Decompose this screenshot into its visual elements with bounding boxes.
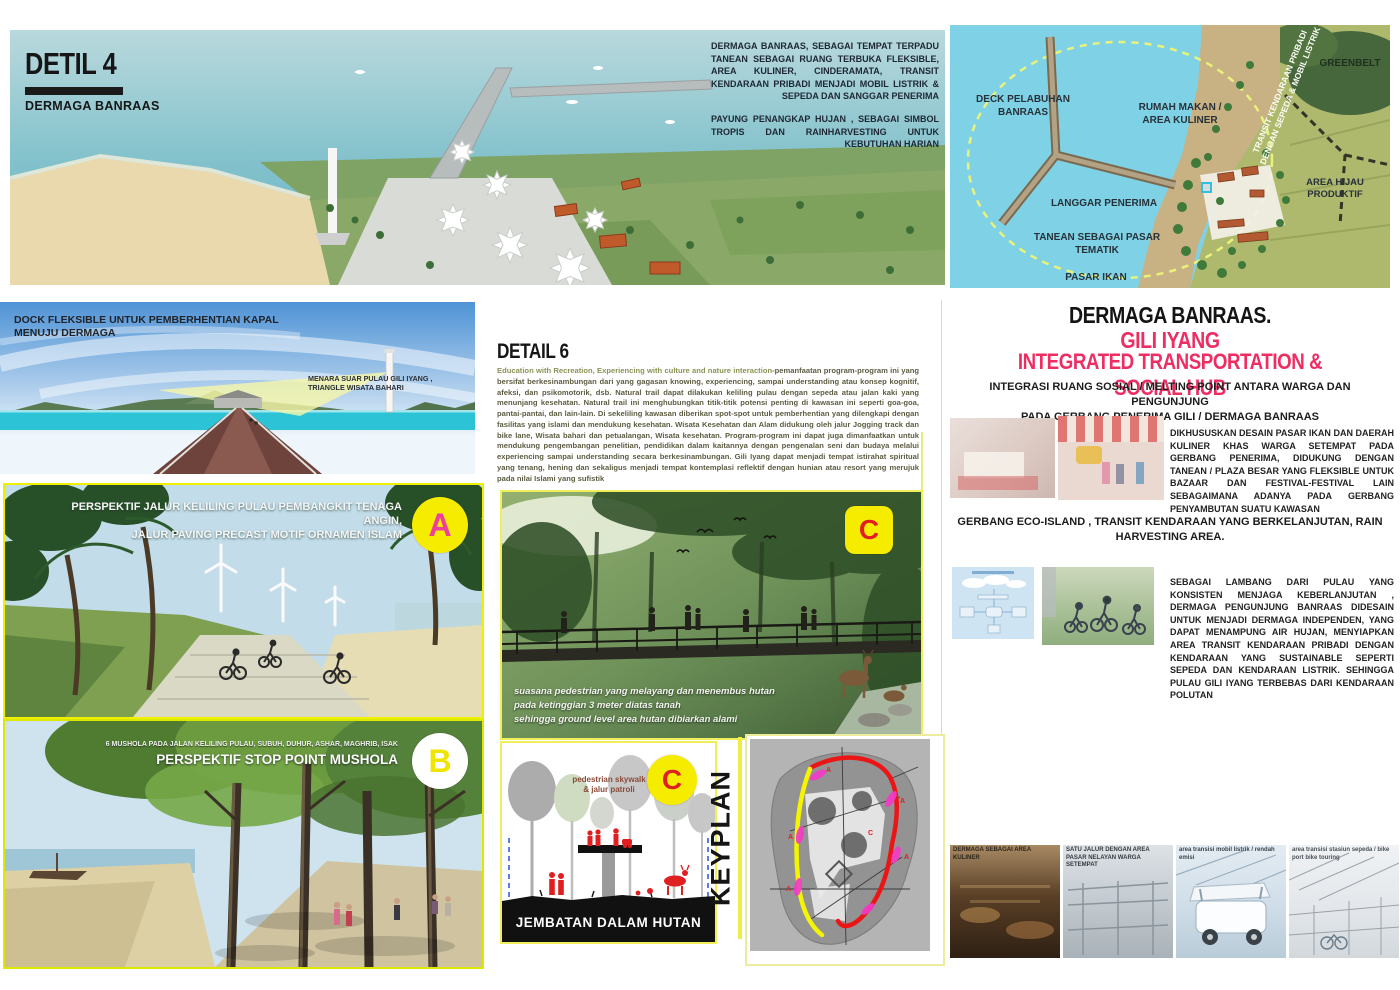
right-title-dermaga: DERMAGA BANRAAS.: [950, 302, 1390, 329]
hero-description-block: DERMAGA BANRAAS, SEBAGAI TEMPAT TERPADU …: [711, 40, 939, 161]
detail6-lead-phrase: Education with Recreation, Experiencing …: [497, 366, 772, 375]
siteplan-label-rumah-makan: RUMAH MAKAN / AREA KULINER: [1118, 101, 1242, 127]
rain-harvest-diagram-thumb: [952, 567, 1034, 639]
perspective-b-caption: PERSPEKTIF STOP POINT MUSHOLA: [65, 752, 398, 769]
perspective-b-small-caption: 6 MUSHOLA PADA JALAN KELILING PULAU, SUB…: [65, 741, 398, 748]
marker-b-badge: B: [412, 733, 468, 789]
crowd-figure-1: [1102, 462, 1110, 484]
right-subheading-gerbang: GERBANG ECO-ISLAND , TRANSIT KENDARAAN Y…: [950, 515, 1390, 545]
keyplan-point-a2: A: [788, 834, 793, 841]
rain-harvest-diagram-shapes: [952, 567, 1034, 639]
cyclists-photo-thumb: [1042, 567, 1154, 645]
strip-caption-2: SATU JALUR DENGAN AREA PASAR NELAYAN WAR…: [1066, 847, 1170, 870]
perspective-b-panel: 6 MUSHOLA PADA JALAN KELILING PULAU, SUB…: [3, 719, 484, 969]
siteplan-label-pasar-ikan: PASAR IKAN: [1046, 271, 1146, 284]
skywalk-section-diagram-panel: pedestrian skywalk & jalur patroli JEMBA…: [500, 741, 717, 944]
strip-caption-4: area transisi stasiun sepeda / bike port…: [1292, 847, 1396, 862]
market-photo-1: [950, 418, 1055, 498]
perspective-a-caption: PERSPEKTIF JALUR KELILING PULAU PEMBANGK…: [45, 501, 402, 542]
forest-skywalk-caption: suasana pedestrian yang melayang dan men…: [514, 685, 844, 726]
dock-photo-panel: DOCK FLEKSIBLE UNTUK PEMBERHENTIAN KAPAL…: [0, 302, 475, 474]
marker-c-badge: C: [845, 506, 893, 554]
detail6-text-panel: DETAIL 6 Education with Recreation, Expe…: [497, 340, 919, 490]
strip-photo-mobil-listrik: area transisi mobil listrik / rendah emi…: [1176, 845, 1286, 958]
detail6-paragraph: Education with Recreation, Experiencing …: [497, 366, 919, 485]
keyplan-point-c: C: [868, 830, 873, 837]
keyplan-label: KEYPLAN: [704, 737, 742, 939]
detail6-title: DETAIL 6: [497, 340, 919, 364]
perspective-a-panel: PERSPEKTIF JALUR KELILING PULAU PEMBANGK…: [3, 483, 484, 719]
strip-photo-pasar: SATU JALUR DENGAN AREA PASAR NELAYAN WAR…: [1063, 845, 1173, 958]
keyplan-map-illustration: A A A A A C: [750, 739, 930, 951]
marker-c2-badge: C: [647, 755, 697, 805]
right-paragraph-pasar: DIKHUSUSKAN DESAIN PASAR IKAN DAN DAERAH…: [1170, 427, 1394, 515]
keyplan-point-a4: A: [900, 798, 905, 805]
market-stall-shape: [964, 452, 1024, 478]
dock-caption: DOCK FLEKSIBLE UNTUK PEMBERHENTIAN KAPAL…: [14, 314, 344, 340]
detail6-body-text: -pemanfaatan program-program ini yang be…: [497, 366, 919, 483]
siteplan-label-area-hijau: AREA HIJAU PRODUKTIF: [1280, 177, 1390, 202]
siteplan-panel: DECK PELABUHAN BANRAAS RUMAH MAKAN / ARE…: [950, 25, 1390, 288]
crowd-figure-3: [1136, 462, 1144, 484]
cyclists-shapes: [1042, 567, 1154, 645]
keyplan-point-a3: A: [786, 886, 791, 893]
market-photo-2: [1058, 416, 1164, 500]
presentation-board: DETIL 4 DERMAGA BANRAAS DERMAGA BANRAAS,…: [0, 0, 1400, 990]
siteplan-label-greenbelt: GREENBELT: [1312, 57, 1388, 70]
tent-shape: [1076, 446, 1102, 464]
strip-photo-kuliner: DERMAGA SEBAGAI AREA KULINER: [950, 845, 1060, 958]
siteplan-label-langgar: LANGGAR PENERIMA: [1034, 197, 1174, 210]
marker-a-badge: A: [412, 497, 468, 553]
hero-render-panel: DETIL 4 DERMAGA BANRAAS DERMAGA BANRAAS,…: [10, 30, 945, 285]
right-paragraph-eco: SEBAGAI LAMBANG DARI PULAU YANG KONSISTE…: [1170, 576, 1394, 702]
keyplan-map-panel: A A A A A C: [745, 734, 945, 966]
title-underline-bar: [25, 87, 123, 95]
crowd-figure-2: [1116, 464, 1124, 484]
striped-awning-shape: [1058, 416, 1164, 442]
detail4-title: DETIL 4: [25, 46, 160, 82]
detail4-title-block: DETIL 4 DERMAGA BANRAAS: [25, 46, 160, 113]
market-table-shape: [958, 476, 1038, 490]
siteplan-label-tanean: TANEAN SEBAGAI PASAR TEMATIK: [1022, 231, 1172, 257]
strip-caption-1: DERMAGA SEBAGAI AREA KULINER: [953, 847, 1057, 862]
hero-paragraph-1: DERMAGA BANRAAS, SEBAGAI TEMPAT TERPADU …: [711, 40, 939, 103]
strip-photo-bike-port: area transisi stasiun sepeda / bike port…: [1289, 845, 1399, 958]
strip-caption-3: area transisi mobil listrik / rendah emi…: [1179, 847, 1283, 862]
keyplan-point-a1: A: [826, 767, 831, 774]
skywalk-diagram-title: JEMBATAN DALAM HUTAN: [502, 915, 715, 930]
forest-skywalk-photo-panel: suasana pedestrian yang melayang dan men…: [500, 490, 923, 740]
hero-paragraph-2: PAYUNG PENANGKAP HUJAN , SEBAGAI SIMBOL …: [711, 113, 939, 151]
lighthouse-label: MENARA SUAR PULAU GILI IYANG , TRIANGLE …: [308, 374, 458, 392]
keyplan-point-a5: A: [904, 854, 909, 861]
detail4-subtitle: DERMAGA BANRAAS: [25, 99, 160, 113]
siteplan-label-deck: DECK PELABUHAN BANRAAS: [968, 93, 1078, 119]
